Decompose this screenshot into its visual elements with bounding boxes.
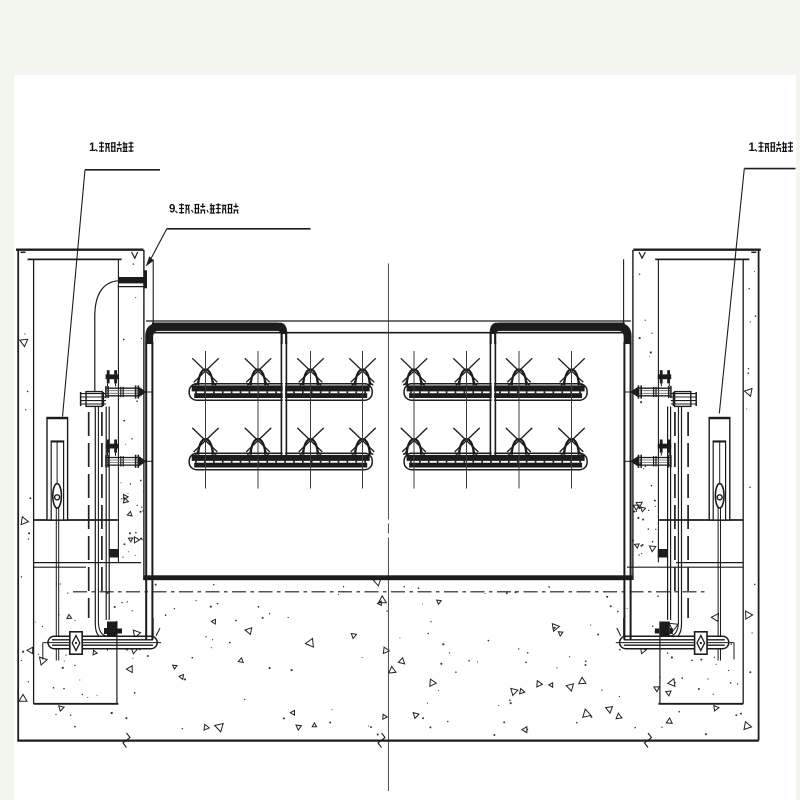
svg-text:1: 1 (89, 142, 96, 154)
svg-text:1: 1 (749, 142, 756, 154)
svg-text:9: 9 (169, 204, 175, 216)
